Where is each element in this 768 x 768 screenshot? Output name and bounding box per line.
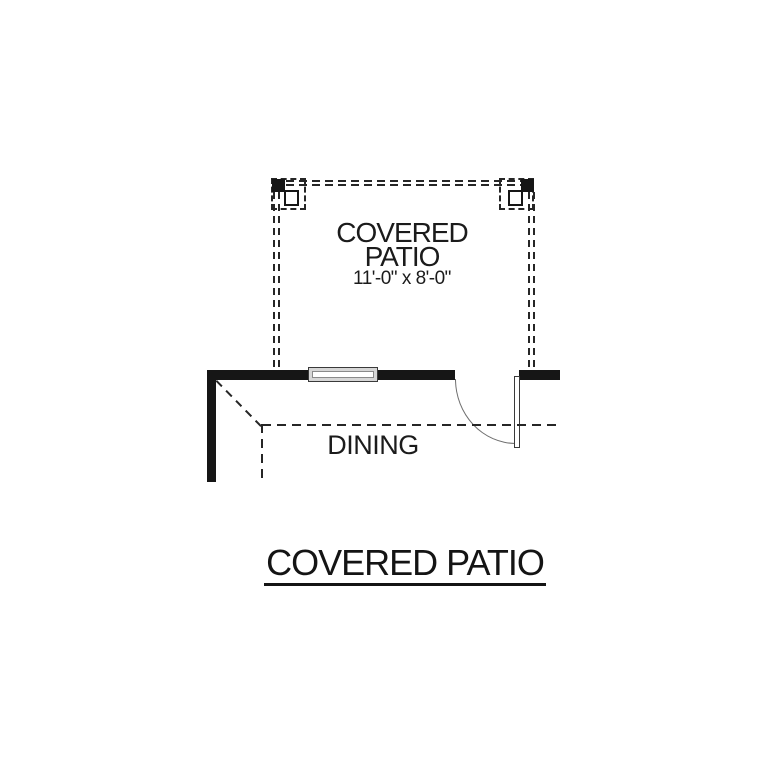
patio-roof-edge-left-inner xyxy=(278,192,280,370)
dining-room-label: DINING xyxy=(318,432,428,459)
door-leaf xyxy=(514,376,520,448)
patio-room-label-line2: PATIO xyxy=(302,245,502,269)
wall-top-right-segment xyxy=(519,370,560,380)
door-swing-arc xyxy=(455,379,516,444)
patio-room-label: COVERED PATIO 11'-0" x 8'-0" xyxy=(302,220,502,289)
patio-roof-edge-top-outer xyxy=(286,180,522,182)
window-glazing-lines xyxy=(312,371,374,378)
sheet-title: COVERED PATIO xyxy=(255,545,555,586)
patio-roof-edge-top-inner xyxy=(286,184,522,186)
wall-left-vertical xyxy=(207,370,216,482)
wall-top-left-segment xyxy=(207,370,308,380)
sheet-title-text: COVERED PATIO xyxy=(264,545,546,586)
ceiling-break-line-horizontal xyxy=(262,424,562,426)
patio-roof-edge-right-outer xyxy=(533,192,535,370)
patio-post-right-base xyxy=(508,190,523,206)
patio-post-left-base xyxy=(284,190,299,206)
window-symbol xyxy=(308,367,378,382)
patio-dimensions-label: 11'-0" x 8'-0" xyxy=(302,269,502,289)
ceiling-break-line-vertical xyxy=(261,424,263,480)
ceiling-break-line-diagonal xyxy=(216,380,262,427)
patio-roof-edge-right-inner xyxy=(528,192,530,370)
wall-top-middle-segment xyxy=(378,370,455,380)
floor-plan-canvas: COVERED PATIO 11'-0" x 8'-0" DINING COVE… xyxy=(0,0,768,768)
patio-roof-edge-left-outer xyxy=(273,192,275,370)
